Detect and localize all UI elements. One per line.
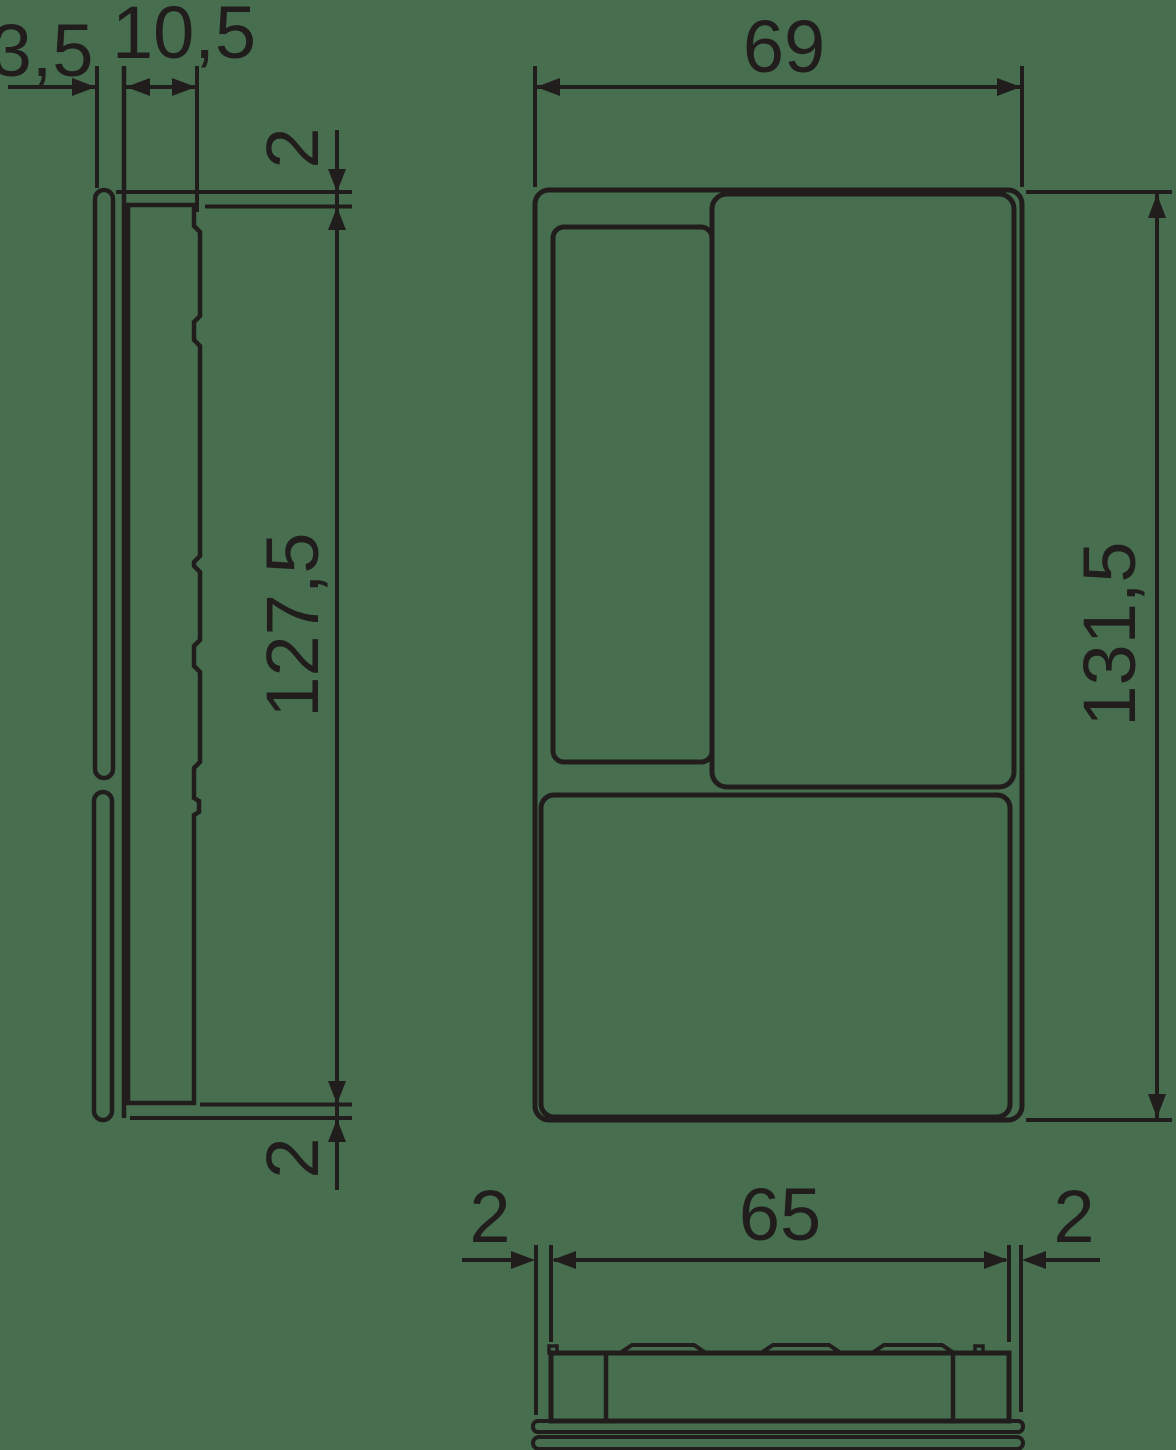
dim-label-right-inset: 2 <box>1053 1175 1094 1258</box>
latch-nub-left <box>549 1346 557 1353</box>
body-profile-with-button-bumps <box>128 205 200 1103</box>
mounting-plate-slab-profile <box>533 1437 1023 1449</box>
arrowhead <box>328 207 346 230</box>
arrowhead <box>126 78 150 96</box>
dim-label-body-width: 65 <box>739 1173 821 1256</box>
arrowhead <box>984 1251 1008 1269</box>
small-left-button <box>553 227 712 762</box>
arrowhead <box>552 1251 576 1269</box>
bottom-view: 2 65 2 <box>462 1173 1100 1449</box>
front-height-dimension: 131,5 <box>1026 192 1172 1120</box>
arrowhead <box>1022 1251 1046 1269</box>
dim-label-top-inset: 2 <box>251 127 334 168</box>
dim-label-left-inset: 2 <box>469 1175 510 1258</box>
dim-label-plate-depth: 3,5 <box>0 9 93 92</box>
arrowhead <box>1148 1094 1166 1118</box>
body-bottom-outline <box>551 1353 1009 1421</box>
latch-nub-right <box>975 1346 983 1353</box>
side-height-dimension: 2 127,5 2 <box>116 127 352 1190</box>
dim-label-width: 69 <box>743 5 825 88</box>
dim-label-bottom-inset: 2 <box>251 1137 334 1178</box>
bottom-width-dimension: 2 65 2 <box>462 1173 1100 1415</box>
arrowhead <box>1148 194 1166 218</box>
technical-drawing: 3,5 10,5 2 127,5 2 <box>0 0 1176 1450</box>
dim-label-body-depth: 10,5 <box>112 0 256 74</box>
dim-label-body-height: 127,5 <box>251 532 334 717</box>
arrowhead <box>328 1081 346 1104</box>
arrowhead <box>536 78 560 96</box>
technical-drawing-page: 3,5 10,5 2 127,5 2 <box>0 0 1176 1450</box>
arrowhead <box>997 78 1021 96</box>
arrowhead <box>328 169 346 192</box>
front-view: 69 131,5 <box>535 5 1172 1120</box>
bottom-rocker <box>541 795 1010 1117</box>
front-width-dimension: 69 <box>535 5 1022 187</box>
frame-slab-profile <box>533 1421 1023 1432</box>
side-view: 3,5 10,5 2 127,5 2 <box>0 0 352 1190</box>
large-right-rocker <box>712 194 1014 787</box>
side-depth-dimension: 3,5 10,5 <box>0 0 256 212</box>
mounting-plate-upper-profile <box>95 190 113 778</box>
arrowhead <box>511 1251 535 1269</box>
mounting-plate-lower-profile <box>94 792 112 1120</box>
arrowhead <box>172 78 196 96</box>
dim-label-height: 131,5 <box>1068 541 1151 726</box>
